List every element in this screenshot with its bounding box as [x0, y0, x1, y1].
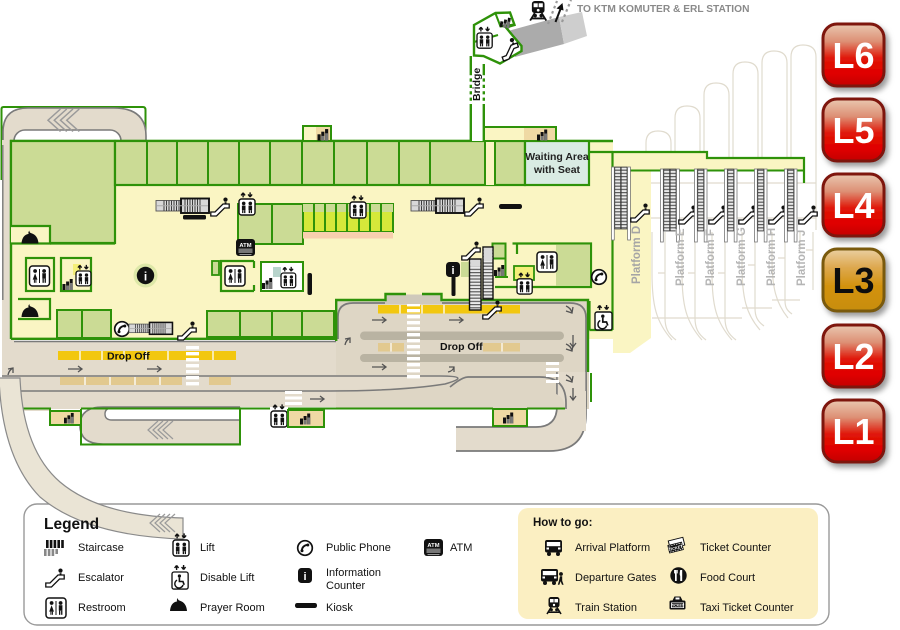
svg-text:Platform D: Platform D: [631, 226, 643, 284]
svg-text:Drop Off: Drop Off: [107, 351, 150, 363]
svg-text:Information: Information: [326, 567, 381, 579]
svg-text:L1: L1: [832, 411, 874, 452]
svg-text:Counter: Counter: [326, 580, 365, 592]
svg-text:Staircase: Staircase: [78, 542, 124, 554]
svg-text:Platform F: Platform F: [705, 229, 717, 286]
svg-text:Taxi Ticket Counter: Taxi Ticket Counter: [700, 602, 794, 614]
svg-text:Kiosk: Kiosk: [326, 602, 353, 614]
svg-text:Platform J: Platform J: [796, 230, 808, 286]
svg-text:Food Court: Food Court: [700, 572, 755, 584]
svg-text:Lift: Lift: [200, 542, 215, 554]
svg-text:Drop Off: Drop Off: [440, 341, 483, 353]
svg-text:Legend: Legend: [44, 516, 99, 533]
svg-text:Platform E: Platform E: [675, 228, 687, 286]
svg-text:Disable Lift: Disable Lift: [200, 572, 254, 584]
svg-text:Bridge: Bridge: [471, 68, 483, 101]
svg-text:L5: L5: [832, 110, 874, 151]
svg-text:Arrival Platform: Arrival Platform: [575, 542, 650, 554]
svg-text:Public Phone: Public Phone: [326, 542, 391, 554]
svg-text:Waiting Area: Waiting Area: [525, 151, 589, 163]
svg-text:Prayer Room: Prayer Room: [200, 602, 265, 614]
svg-text:L3: L3: [832, 260, 874, 301]
svg-text:Departure Gates: Departure Gates: [575, 572, 657, 584]
svg-text:L2: L2: [832, 336, 874, 377]
svg-text:Escalator: Escalator: [78, 572, 124, 584]
svg-text:Ticket Counter: Ticket Counter: [700, 542, 771, 554]
svg-text:TO KTM KOMUTER & ERL STATION: TO KTM KOMUTER & ERL STATION: [577, 4, 749, 15]
svg-text:Platform G: Platform G: [736, 227, 748, 286]
svg-text:L6: L6: [832, 35, 874, 76]
svg-text:Train Station: Train Station: [575, 602, 637, 614]
svg-text:L4: L4: [832, 185, 874, 226]
svg-text:Platform H: Platform H: [766, 228, 778, 286]
svg-text:ATM: ATM: [450, 542, 472, 554]
svg-text:with Seat: with Seat: [533, 164, 581, 176]
svg-text:Restroom: Restroom: [78, 602, 126, 614]
svg-text:How to go:: How to go:: [533, 517, 592, 529]
svg-text:i: i: [144, 270, 147, 284]
